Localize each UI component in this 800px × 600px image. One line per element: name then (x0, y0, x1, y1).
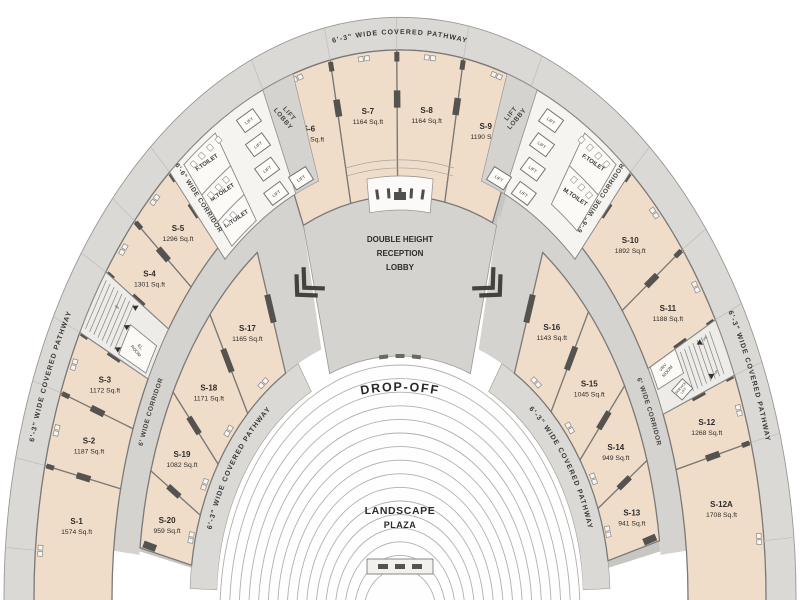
unit-s-12a-area: 1708 Sq.ft (706, 512, 737, 519)
unit-s-3-label: S-3 (99, 376, 112, 385)
unit-s-12-label: S-12 (698, 418, 715, 427)
unit-s-10-label: S-10 (622, 236, 639, 245)
floor-plan-svg: S-11574 Sq.ftS-21187 Sq.ftS-31172 Sq.ftS… (0, 0, 800, 600)
unit-s-20-area: 959 Sq.ft (153, 528, 180, 535)
unit-s-19-label: S-19 (174, 450, 191, 459)
unit-s-12a (676, 442, 766, 600)
unit-s-11-area: 1188 Sq.ft (653, 316, 684, 323)
unit-s-17-label: S-17 (239, 324, 256, 333)
unit-s-18-label: S-18 (200, 383, 217, 392)
unit-s-12-area: 1268 Sq.ft (691, 430, 722, 437)
unit-s-5-label: S-5 (172, 224, 185, 233)
unit-s-14-label: S-14 (607, 443, 624, 452)
unit-s-8-label: S-8 (420, 106, 433, 115)
reception-label-2: RECEPTION (377, 249, 424, 258)
unit-s-2-area: 1187 Sq.ft (74, 449, 105, 456)
landscape-plaza-label-2: PLAZA (384, 520, 417, 530)
unit-s-17-area: 1165 Sq.ft (232, 336, 263, 343)
unit-s-5-area: 1296 Sq.ft (163, 236, 194, 243)
unit-s-9-label: S-9 (479, 122, 492, 131)
unit-s-15-label: S-15 (581, 380, 598, 389)
unit-s-11-label: S-11 (660, 304, 677, 313)
unit-s-13-area: 941 Sq.ft (618, 521, 645, 528)
unit-s-2-label: S-2 (83, 437, 96, 446)
unit-s-14-area: 949 Sq.ft (602, 455, 629, 462)
unit-s-18-area: 1171 Sq.ft (194, 395, 225, 402)
reception-label-3: LOBBY (386, 263, 415, 272)
unit-s-4-area: 1301 Sq.ft (134, 282, 165, 289)
unit-s-4-label: S-4 (143, 270, 156, 279)
unit-s-12a-label: S-12A (710, 500, 733, 509)
unit-s-7-label: S-7 (362, 107, 375, 116)
unit-s-20-label: S-20 (159, 516, 176, 525)
unit-s-15-area: 1045 Sq.ft (574, 392, 605, 399)
unit-s-19-area: 1082 Sq.ft (167, 462, 198, 469)
unit-s-16-area: 1143 Sq.ft (537, 335, 568, 342)
unit-s-10-area: 1892 Sq.ft (615, 248, 646, 255)
floor-plan: S-11574 Sq.ftS-21187 Sq.ftS-31172 Sq.ftS… (0, 0, 800, 600)
reception-lobby-area (303, 196, 496, 374)
unit-s-1-label: S-1 (70, 517, 83, 526)
landscape-plaza-label-1: LANDSCAPE (365, 505, 436, 517)
reception-label-1: DOUBLE HEIGHT (367, 235, 433, 244)
unit-s-16-label: S-16 (543, 323, 560, 332)
unit-s-1-area: 1574 Sq.ft (61, 529, 92, 536)
unit-s-7-area: 1164 Sq.ft (353, 119, 384, 126)
unit-s-13-label: S-13 (623, 509, 640, 518)
plaza-stage (367, 559, 433, 574)
unit-s-8-area: 1164 Sq.ft (411, 118, 442, 125)
unit-s-3-area: 1172 Sq.ft (90, 388, 121, 395)
